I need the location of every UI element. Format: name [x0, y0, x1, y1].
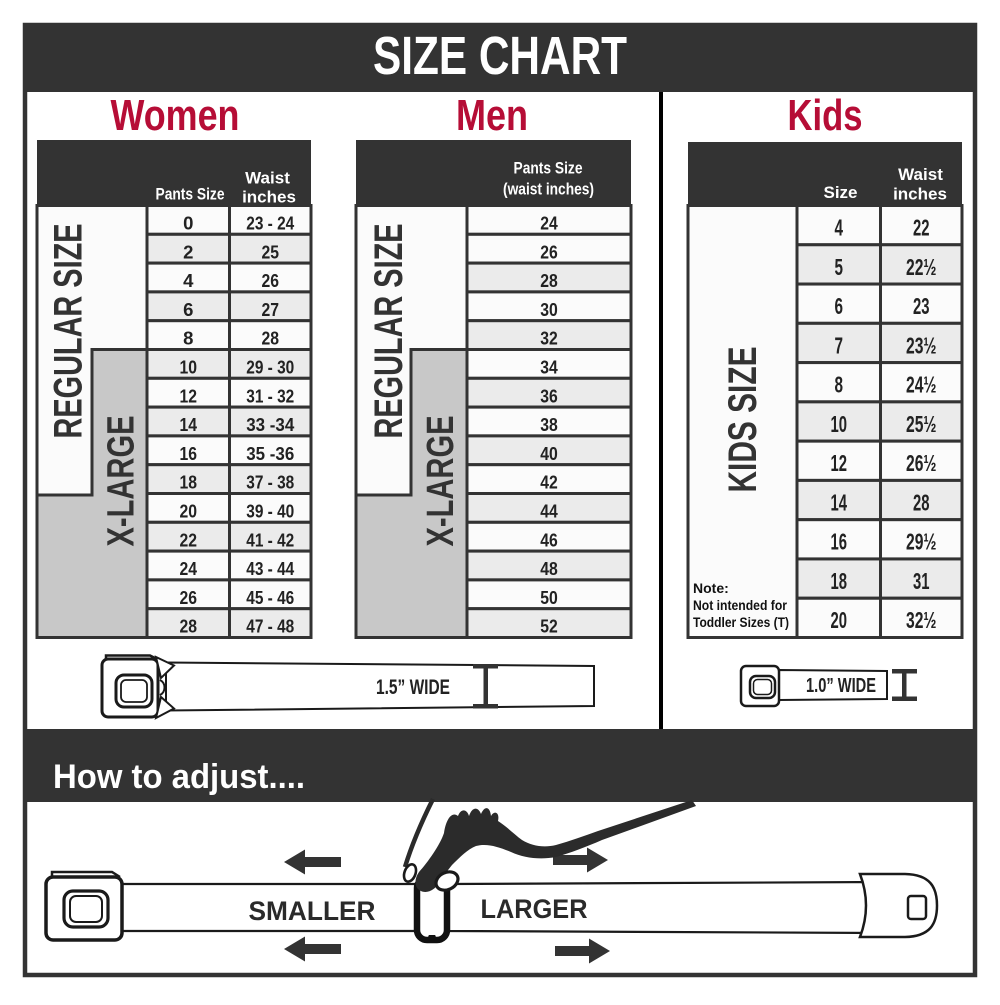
- svg-text:25: 25: [262, 241, 280, 262]
- svg-text:7: 7: [835, 332, 844, 358]
- svg-text:22: 22: [180, 529, 198, 550]
- svg-text:inches: inches: [242, 188, 296, 207]
- svg-text:Toddler Sizes (T): Toddler Sizes (T): [693, 614, 789, 630]
- svg-text:1.0” WIDE: 1.0” WIDE: [806, 675, 876, 697]
- svg-text:4: 4: [183, 270, 194, 291]
- svg-text:6: 6: [835, 293, 844, 319]
- svg-text:4: 4: [835, 215, 844, 241]
- svg-text:Waist: Waist: [245, 169, 290, 188]
- svg-text:24: 24: [540, 213, 558, 234]
- svg-text:25½: 25½: [906, 411, 937, 437]
- svg-text:16: 16: [831, 529, 848, 555]
- svg-text:X-LARGE: X-LARGE: [420, 416, 462, 547]
- svg-text:inches: inches: [893, 185, 947, 204]
- svg-text:X-LARGE: X-LARGE: [101, 416, 143, 547]
- svg-text:52: 52: [540, 616, 558, 637]
- svg-text:6: 6: [183, 299, 193, 320]
- svg-text:44: 44: [540, 501, 558, 522]
- svg-text:42: 42: [540, 472, 558, 493]
- svg-text:8: 8: [183, 328, 193, 349]
- svg-text:31 - 32: 31 - 32: [246, 385, 294, 406]
- svg-text:2: 2: [183, 241, 193, 262]
- svg-text:36: 36: [540, 385, 558, 406]
- svg-text:48: 48: [540, 558, 558, 579]
- svg-text:14: 14: [180, 414, 198, 435]
- svg-text:Note:: Note:: [693, 580, 729, 596]
- svg-text:18: 18: [831, 568, 848, 594]
- svg-text:1.5” WIDE: 1.5” WIDE: [376, 676, 450, 699]
- svg-text:45 - 46: 45 - 46: [246, 587, 294, 608]
- svg-text:28: 28: [913, 489, 930, 515]
- svg-text:16: 16: [180, 443, 198, 464]
- svg-text:31: 31: [913, 568, 930, 594]
- svg-text:39 - 40: 39 - 40: [246, 501, 294, 522]
- svg-text:34: 34: [540, 357, 558, 378]
- svg-text:Women: Women: [111, 91, 240, 140]
- svg-text:32: 32: [540, 328, 558, 349]
- svg-text:Kids: Kids: [788, 91, 863, 140]
- svg-text:SIZE CHART: SIZE CHART: [373, 26, 627, 86]
- svg-text:12: 12: [831, 450, 848, 476]
- svg-text:26: 26: [540, 241, 558, 262]
- svg-text:43 - 44: 43 - 44: [246, 558, 295, 579]
- svg-text:(waist inches): (waist inches): [503, 180, 594, 199]
- svg-text:Not intended for: Not intended for: [693, 597, 787, 613]
- svg-text:30: 30: [540, 299, 558, 320]
- svg-text:Size: Size: [823, 183, 857, 202]
- svg-text:10: 10: [831, 411, 848, 437]
- svg-text:REGULAR SIZE: REGULAR SIZE: [367, 224, 411, 439]
- svg-text:41 - 42: 41 - 42: [246, 529, 294, 550]
- svg-text:40: 40: [540, 443, 558, 464]
- svg-text:LARGER: LARGER: [481, 894, 588, 924]
- svg-text:35 -36: 35 -36: [246, 443, 294, 464]
- svg-text:23½: 23½: [906, 332, 937, 358]
- svg-text:24½: 24½: [906, 372, 937, 398]
- svg-text:22: 22: [913, 215, 930, 241]
- svg-text:33 -34: 33 -34: [246, 414, 295, 435]
- svg-text:10: 10: [180, 357, 198, 378]
- svg-text:28: 28: [180, 616, 198, 637]
- svg-text:37 - 38: 37 - 38: [246, 472, 294, 493]
- svg-text:28: 28: [540, 270, 558, 291]
- svg-text:Men: Men: [456, 91, 528, 140]
- svg-text:23 - 24: 23 - 24: [246, 213, 295, 234]
- svg-text:12: 12: [180, 385, 198, 406]
- svg-text:26: 26: [262, 270, 280, 291]
- svg-text:29 - 30: 29 - 30: [246, 357, 294, 378]
- svg-text:8: 8: [835, 372, 844, 398]
- svg-text:24: 24: [180, 558, 198, 579]
- svg-text:22½: 22½: [906, 254, 937, 280]
- svg-text:47 - 48: 47 - 48: [246, 616, 294, 637]
- svg-text:5: 5: [835, 254, 844, 280]
- svg-text:REGULAR SIZE: REGULAR SIZE: [47, 224, 91, 439]
- svg-text:Pants Size: Pants Size: [156, 185, 225, 204]
- svg-text:KIDS SIZE: KIDS SIZE: [721, 347, 765, 493]
- svg-text:Pants Size: Pants Size: [514, 159, 583, 178]
- svg-text:46: 46: [540, 529, 558, 550]
- svg-text:27: 27: [262, 299, 280, 320]
- svg-text:0: 0: [183, 213, 193, 234]
- svg-text:How to adjust....: How to adjust....: [53, 758, 305, 796]
- svg-text:32½: 32½: [906, 607, 937, 633]
- svg-text:20: 20: [180, 501, 198, 522]
- svg-text:26½: 26½: [906, 450, 937, 476]
- svg-text:50: 50: [540, 587, 558, 608]
- svg-text:20: 20: [831, 607, 848, 633]
- svg-text:Waist: Waist: [898, 165, 943, 184]
- svg-text:29½: 29½: [906, 529, 937, 555]
- svg-text:38: 38: [540, 414, 558, 435]
- svg-text:28: 28: [262, 328, 280, 349]
- svg-text:26: 26: [180, 587, 198, 608]
- svg-text:23: 23: [913, 293, 930, 319]
- svg-text:18: 18: [180, 472, 198, 493]
- svg-text:14: 14: [831, 489, 848, 515]
- svg-text:SMALLER: SMALLER: [249, 896, 376, 926]
